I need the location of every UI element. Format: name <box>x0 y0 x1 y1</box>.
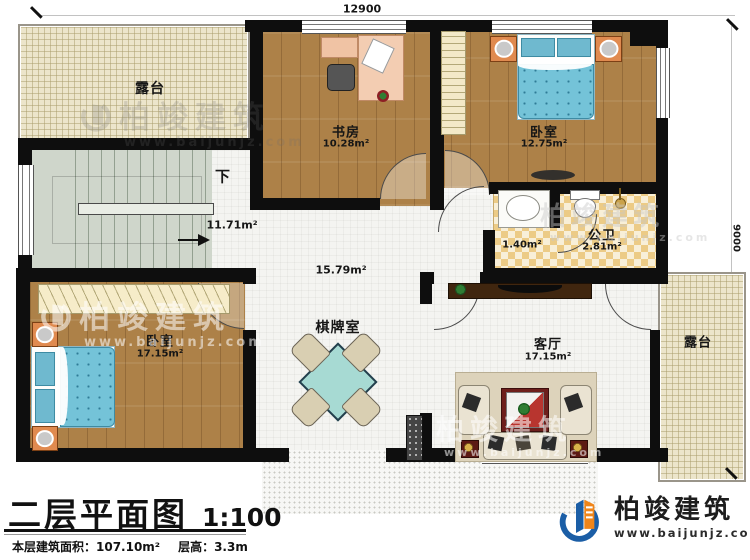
floor-plan-page: 12900 9000 <box>0 0 750 560</box>
stair-area-label: 11.71m² <box>206 219 257 232</box>
study-area-label: 10.28m² <box>323 139 369 150</box>
nightstand-lamp <box>32 322 58 347</box>
bedroom-left-wardrobe <box>38 284 230 314</box>
nightstand-lamp <box>595 36 622 62</box>
bedroom-top-dresser <box>531 170 575 180</box>
bed-pillow <box>35 352 55 386</box>
bedroom-top-right-window <box>656 48 670 118</box>
floor-height-text: 层高：3.3m <box>178 538 248 555</box>
wall-chess-bottom-west <box>255 448 289 462</box>
wall-living-terrace <box>650 330 660 462</box>
tv-plant <box>455 284 466 295</box>
wall-living-terrace-stub <box>650 268 668 284</box>
bedroom-left-area-label: 17.15m² <box>137 349 183 360</box>
brand-text: 柏竣建筑 www.baijunjz.com <box>614 497 750 540</box>
bedroom-left-label: 卧室 <box>146 331 174 350</box>
table-plant <box>518 403 530 415</box>
title-info: 本层建筑面积：107.10m² 层高：3.3m <box>12 538 248 555</box>
dimension-right-label: 9000 <box>731 224 742 252</box>
brand-url: www.baijunjz.com <box>614 526 750 540</box>
wall-bedroom-left-west <box>16 268 30 462</box>
wall-bedroom-left-east <box>243 330 256 462</box>
wall-bedroom-left-east-stub <box>243 268 256 284</box>
hall-area-label: 15.79m² <box>315 264 366 277</box>
dimension-tick <box>726 18 738 30</box>
vanity-sink <box>506 195 540 221</box>
wall-hall-study <box>250 20 263 210</box>
bedroom-top-window <box>492 20 592 34</box>
dimension-top-label: 12900 <box>343 3 381 16</box>
bedroom-top-area-label: 12.75m² <box>521 139 567 150</box>
terrace-top-label: 露台 <box>135 78 165 98</box>
bathroom-area-label: 2.81m² <box>582 242 621 253</box>
terrace-right-label: 露台 <box>684 332 712 351</box>
study-plant <box>377 90 389 102</box>
study-desk-pad <box>321 37 358 58</box>
wall-stair-bottom <box>16 268 256 282</box>
wall-vanity-divider <box>550 188 560 228</box>
living-room-label: 客厅 <box>534 334 562 353</box>
stair-stringer <box>78 203 214 215</box>
living-room-area-label: 17.15m² <box>525 352 571 363</box>
stair-down-label: 下 <box>215 166 231 187</box>
title-underline-thin <box>4 534 246 535</box>
bed-sheet-fold <box>56 347 68 425</box>
bed-sheet-fold <box>518 58 592 70</box>
stair-arrow-head <box>198 234 210 246</box>
shower-hose <box>619 188 621 200</box>
nightstand-lamp <box>32 426 58 451</box>
floor-area-text: 本层建筑面积：107.10m² <box>12 538 160 555</box>
chess-room-label: 棋牌室 <box>316 317 361 337</box>
bed-pillow <box>35 389 55 423</box>
bedroom-top-wardrobe <box>441 31 466 135</box>
wall-study-bottom <box>252 198 380 210</box>
brand-logo-icon <box>556 492 606 544</box>
side-table-plant <box>464 443 473 452</box>
sofa-cushion <box>515 435 531 451</box>
study-window <box>302 20 406 34</box>
title-underline <box>4 529 246 532</box>
brand-name: 柏竣建筑 <box>614 497 750 523</box>
sofa-cushion <box>541 435 557 451</box>
bed-pillow <box>557 38 591 57</box>
stairwell-window <box>18 165 34 255</box>
scale-label: 1:100 <box>202 503 282 532</box>
wall-terrace-stair <box>18 138 258 150</box>
bed-pillow <box>521 38 555 57</box>
nightstand-lamp <box>490 36 517 62</box>
terrace-right <box>658 272 746 482</box>
sofa-cushion <box>488 435 505 452</box>
stair-arrow-line <box>178 239 200 241</box>
shower-head <box>615 198 626 209</box>
dimension-tick <box>30 6 42 18</box>
hall-cabinet <box>406 415 423 461</box>
vanity-area-label: 1.40m² <box>502 240 541 251</box>
dimension-line-top <box>38 15 735 16</box>
wall-chess-living-north <box>420 272 432 304</box>
bedroom-left-duvet <box>60 347 115 427</box>
brand-logo: 柏竣建筑 www.baijunjz.com <box>556 492 750 544</box>
terrace-top-left <box>18 24 250 144</box>
side-table-plant <box>573 443 582 452</box>
bedroom-top-duvet <box>518 64 594 119</box>
study-office-chair <box>327 64 355 91</box>
